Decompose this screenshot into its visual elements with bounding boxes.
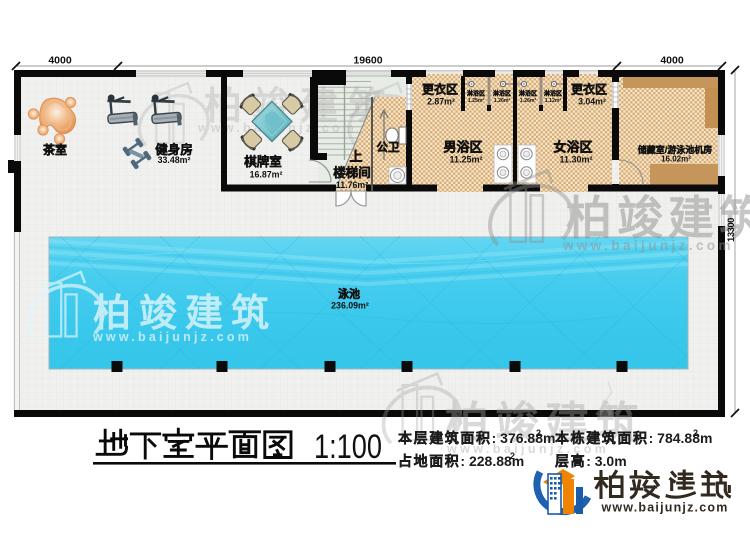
svg-text:2.87m²: 2.87m² — [427, 97, 455, 107]
svg-text:11.76m²: 11.76m² — [336, 180, 368, 190]
svg-text:上: 上 — [349, 149, 362, 164]
svg-text:女浴区: 女浴区 — [553, 140, 592, 155]
svg-text:本栋建筑面积: 784.88m: 本栋建筑面积: 784.88m — [555, 430, 712, 446]
svg-text:4000: 4000 — [660, 55, 684, 67]
svg-text:男浴区: 男浴区 — [443, 140, 482, 155]
svg-text:1.25m²: 1.25m² — [468, 98, 485, 104]
svg-text:2: 2 — [536, 428, 541, 438]
svg-text:本层建筑面积: 376.88m: 本层建筑面积: 376.88m — [398, 430, 555, 446]
svg-text:16.02m²: 16.02m² — [661, 155, 691, 164]
svg-text:柏竣建筑: 柏竣建筑 — [566, 192, 750, 244]
svg-text:占地面积: 228.88m: 占地面积: 228.88m — [398, 453, 524, 469]
svg-text:淋浴区: 淋浴区 — [493, 90, 511, 98]
svg-text:淋浴区: 淋浴区 — [519, 90, 537, 98]
svg-text:茶室: 茶室 — [42, 142, 67, 157]
svg-text:19600: 19600 — [353, 55, 382, 67]
svg-text:13300: 13300 — [726, 218, 737, 242]
svg-text:1.26m²: 1.26m² — [494, 98, 511, 104]
svg-text:公卫: 公卫 — [377, 141, 400, 154]
svg-text:1.26m²: 1.26m² — [520, 98, 537, 104]
svg-text:11.30m²: 11.30m² — [559, 155, 592, 165]
svg-text:www.baijunjz.com: www.baijunjz.com — [600, 501, 728, 515]
svg-text:柏竣建筑: 柏竣建筑 — [93, 293, 277, 335]
svg-text:33.48m²: 33.48m² — [158, 155, 191, 165]
svg-text:1:100: 1:100 — [314, 427, 382, 466]
svg-text:层高: 3.0m: 层高: 3.0m — [555, 453, 627, 469]
svg-text:棋牌室: 棋牌室 — [243, 154, 282, 169]
svg-text:3.04m²: 3.04m² — [578, 97, 606, 107]
svg-text:更衣区: 更衣区 — [571, 82, 607, 97]
svg-text:储藏室/游泳池机房: 储藏室/游泳池机房 — [638, 144, 713, 155]
svg-text:1.12m²: 1.12m² — [545, 98, 562, 104]
svg-text:泳池: 泳池 — [338, 287, 360, 301]
svg-text:淋浴区: 淋浴区 — [467, 90, 485, 98]
svg-text:2: 2 — [693, 428, 698, 438]
svg-text:236.09m²: 236.09m² — [331, 301, 369, 311]
svg-text:2: 2 — [510, 451, 515, 461]
svg-text:4000: 4000 — [48, 55, 72, 67]
svg-text:楼梯间: 楼梯间 — [333, 165, 371, 180]
svg-text:www.baijunjz.com: www.baijunjz.com — [562, 238, 734, 253]
svg-text:11.25m²: 11.25m² — [449, 155, 482, 165]
svg-text:更衣区: 更衣区 — [422, 82, 458, 97]
svg-text:淋浴区: 淋浴区 — [544, 90, 562, 98]
svg-text:16.87m²: 16.87m² — [250, 170, 283, 180]
svg-text:www.baijunjz.com: www.baijunjz.com — [92, 330, 252, 344]
